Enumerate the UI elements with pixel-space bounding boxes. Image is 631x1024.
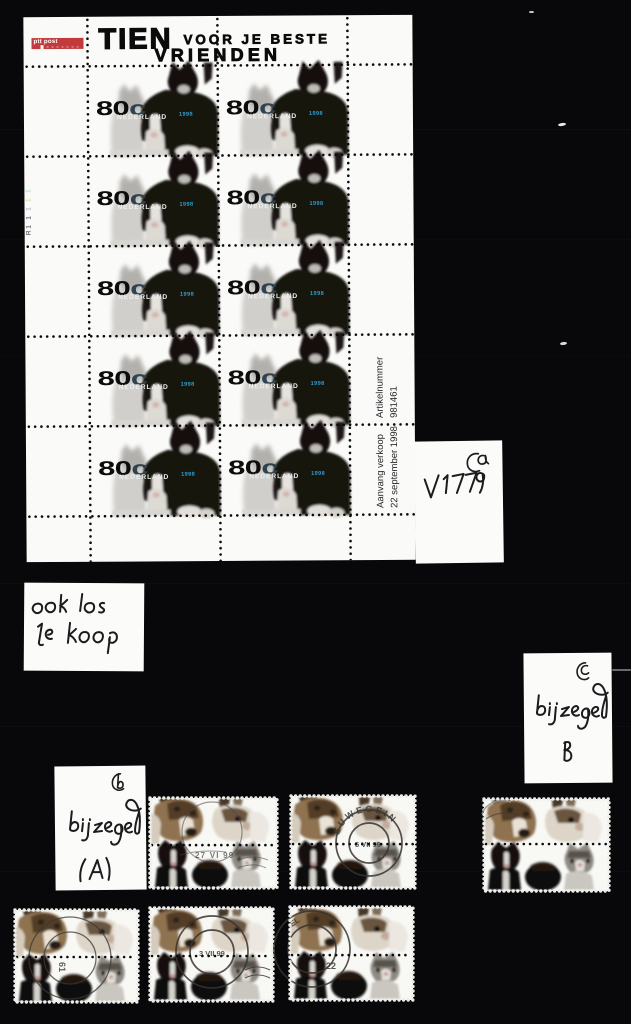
svg-text:61: 61 [57, 962, 67, 972]
svg-text:22: 22 [326, 961, 336, 971]
svg-text:27 VI 99: 27 VI 99 [195, 851, 234, 860]
